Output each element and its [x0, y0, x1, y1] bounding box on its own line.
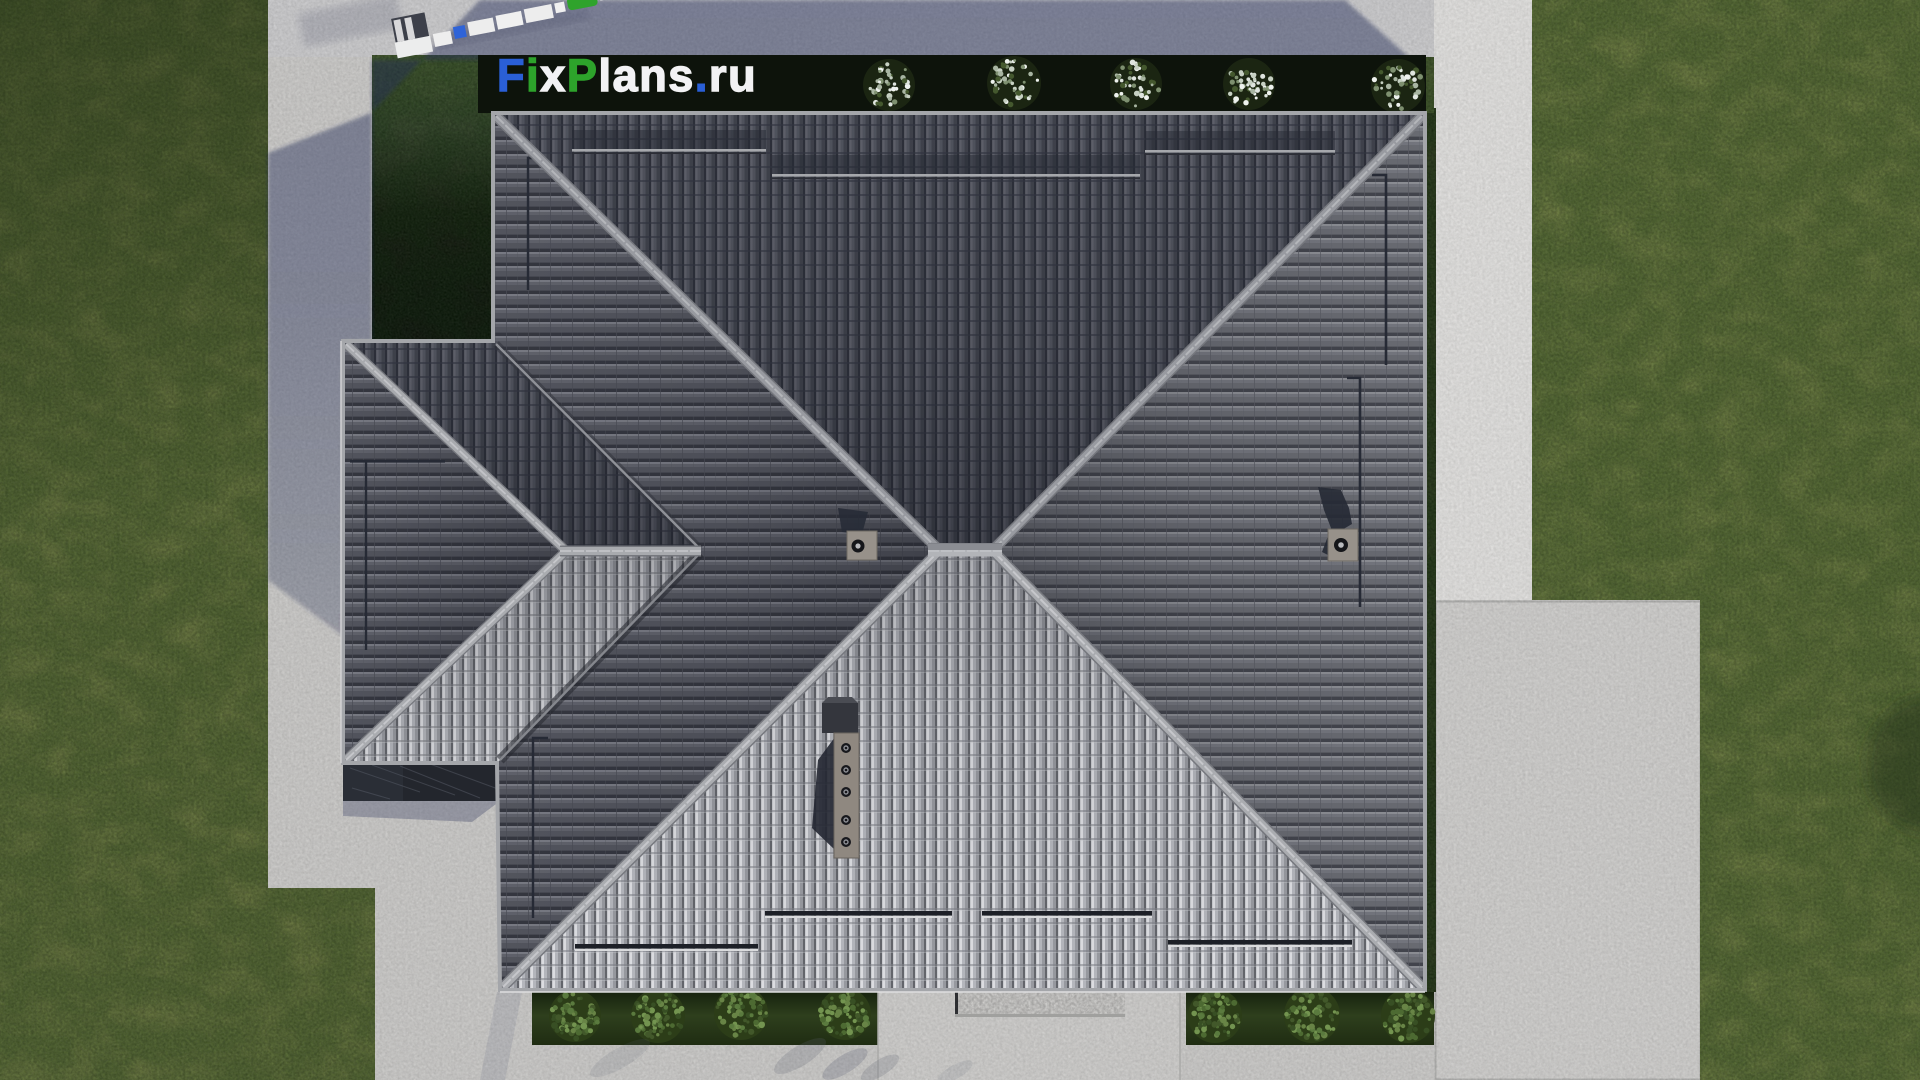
svg-text:FixPlans.ru: FixPlans.ru: [497, 50, 757, 101]
